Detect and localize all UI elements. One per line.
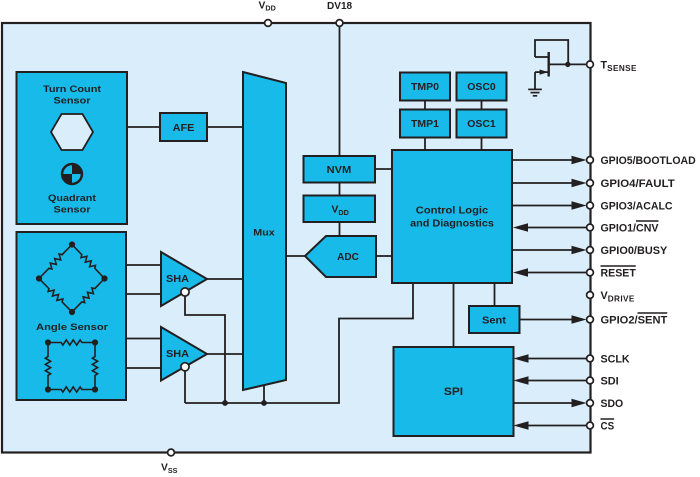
svg-text:Sent: Sent xyxy=(482,315,507,327)
svg-text:VDD: VDD xyxy=(259,1,276,13)
svg-text:GPIO3/ACALC: GPIO3/ACALC xyxy=(601,200,673,212)
svg-text:Sensor: Sensor xyxy=(54,205,91,215)
svg-text:Control Logic: Control Logic xyxy=(416,206,489,217)
svg-text:NVM: NVM xyxy=(327,165,352,176)
svg-text:SCLK: SCLK xyxy=(601,353,630,365)
svg-text:SHA: SHA xyxy=(166,349,189,360)
svg-text:SDI: SDI xyxy=(601,375,619,387)
svg-text:Quadrant: Quadrant xyxy=(48,193,96,203)
svg-text:TMP1: TMP1 xyxy=(411,119,439,130)
svg-text:GPIO2/SENT: GPIO2/SENT xyxy=(601,314,668,326)
svg-text:and Diagnostics: and Diagnostics xyxy=(410,219,494,230)
svg-text:Sensor: Sensor xyxy=(54,96,91,106)
svg-text:OSC0: OSC0 xyxy=(467,82,496,93)
svg-text:TSENSE: TSENSE xyxy=(601,59,638,73)
svg-text:VDRIVE: VDRIVE xyxy=(601,290,635,304)
svg-text:OSC1: OSC1 xyxy=(467,119,496,130)
svg-text:TMP0: TMP0 xyxy=(411,82,439,93)
svg-text:Angle Sensor: Angle Sensor xyxy=(36,322,108,333)
svg-text:Turn Count: Turn Count xyxy=(43,84,101,94)
svg-text:GPIO5/BOOTLOAD: GPIO5/BOOTLOAD xyxy=(601,155,696,167)
svg-text:GPIO1/CNV: GPIO1/CNV xyxy=(601,222,660,234)
svg-text:AFE: AFE xyxy=(173,123,195,134)
svg-text:VSS: VSS xyxy=(161,463,178,475)
svg-text:RESET: RESET xyxy=(601,267,637,279)
svg-text:SHA: SHA xyxy=(166,274,189,285)
svg-text:Mux: Mux xyxy=(253,228,275,239)
svg-text:GPIO4/FAULT: GPIO4/FAULT xyxy=(601,178,676,190)
svg-text:ADC: ADC xyxy=(337,252,359,263)
svg-text:CS: CS xyxy=(601,420,615,432)
svg-text:GPIO0/BUSY: GPIO0/BUSY xyxy=(601,245,669,257)
svg-text:DV18: DV18 xyxy=(327,0,352,12)
svg-text:SPI: SPI xyxy=(444,386,463,398)
svg-text:SDO: SDO xyxy=(601,398,624,410)
